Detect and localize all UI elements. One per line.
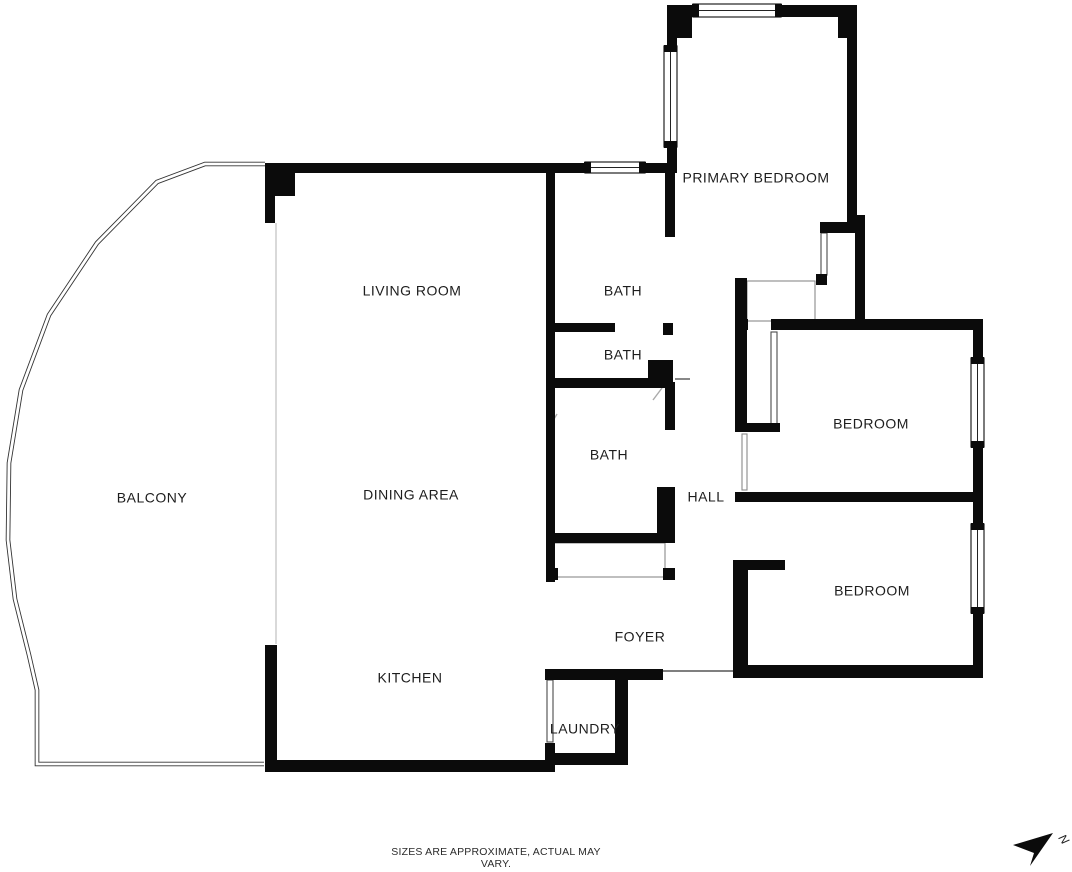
room-label-dining-area: DINING AREA <box>363 487 459 503</box>
wall-segment <box>747 423 780 432</box>
wall-segment <box>973 445 983 492</box>
wall-segment <box>667 5 692 38</box>
wall-segment <box>973 502 983 526</box>
wall-segment <box>973 330 983 361</box>
balcony-rail-inner <box>8 164 265 764</box>
room-label-living-room: LIVING ROOM <box>363 283 462 299</box>
primary-bedroom-left-window-cap <box>664 141 677 148</box>
living-room-top-window-cap <box>639 162 646 173</box>
room-label-laundry: LAUNDRY <box>550 721 620 737</box>
wall-segment <box>735 665 983 678</box>
wall-segment <box>735 492 983 502</box>
wall-segment <box>546 568 558 580</box>
north-label: N <box>1056 832 1072 847</box>
room-label-balcony: BALCONY <box>117 490 188 506</box>
wall-segment <box>265 645 277 760</box>
wall-segment <box>643 163 668 173</box>
room-label-bedroom-upper: BEDROOM <box>833 416 909 432</box>
wall-segment <box>553 533 675 543</box>
room-label-bath-lower: BATH <box>590 447 628 463</box>
wall-segment <box>545 669 663 680</box>
wall-segment <box>847 17 857 223</box>
wall-segment <box>265 760 555 772</box>
bath2-door-swing <box>653 388 662 400</box>
north-arrow-icon <box>1013 833 1053 866</box>
wall-segment <box>816 274 827 285</box>
wall-segment <box>615 669 628 765</box>
room-label-bedroom-lower: BEDROOM <box>834 583 910 599</box>
bedroom-upper-window-cap <box>971 441 984 448</box>
wall-segment <box>553 753 628 765</box>
hall-opening-jamb <box>742 434 747 490</box>
floor-plan-page: BALCONYLIVING ROOMDINING AREAKITCHENBATH… <box>0 0 1072 872</box>
wall-segment <box>748 560 785 570</box>
wall-segment <box>663 568 675 580</box>
wall-segment <box>733 560 748 678</box>
wall-segment <box>657 487 675 538</box>
wall-segment <box>735 319 748 330</box>
room-label-bath-middle: BATH <box>604 347 642 363</box>
wall-segment <box>665 382 675 430</box>
wall-segment <box>546 172 555 582</box>
bedroom-lower-window-cap <box>971 607 984 614</box>
primary-bedroom-top-window-cap <box>692 4 699 17</box>
balcony-rail-outline <box>8 164 265 764</box>
bedroom-lower-window-cap <box>971 523 984 530</box>
wall-segment <box>771 319 983 330</box>
bath-closet <box>553 543 665 577</box>
wall-segment <box>265 196 275 223</box>
disclaimer-text: SIZES ARE APPROXIMATE, ACTUAL MAY VARY. <box>375 846 617 870</box>
bedroom-upper-door-leaf <box>771 332 777 424</box>
room-label-kitchen: KITCHEN <box>378 670 443 686</box>
primary-bedroom-left-window-cap <box>664 45 677 52</box>
room-label-primary-bedroom: PRIMARY BEDROOM <box>682 170 829 186</box>
wall-segment <box>265 163 587 173</box>
room-label-foyer: FOYER <box>615 629 666 645</box>
wall-segment <box>546 378 650 388</box>
primary-bedroom-top-window-cap <box>775 4 782 17</box>
room-label-bath-top: BATH <box>604 283 642 299</box>
wall-segment <box>665 163 675 237</box>
hall-closet <box>747 281 815 321</box>
wall-segment <box>663 323 673 335</box>
living-room-top-window-cap <box>584 162 591 173</box>
wall-segment <box>735 278 747 432</box>
room-label-hall: HALL <box>687 489 724 505</box>
wall-segment <box>855 215 865 330</box>
wall-segment <box>546 323 615 332</box>
floor-plan-svg: BALCONYLIVING ROOMDINING AREAKITCHENBATH… <box>0 0 1072 872</box>
primary-closet-door <box>821 233 827 275</box>
bedroom-upper-window-cap <box>971 357 984 364</box>
